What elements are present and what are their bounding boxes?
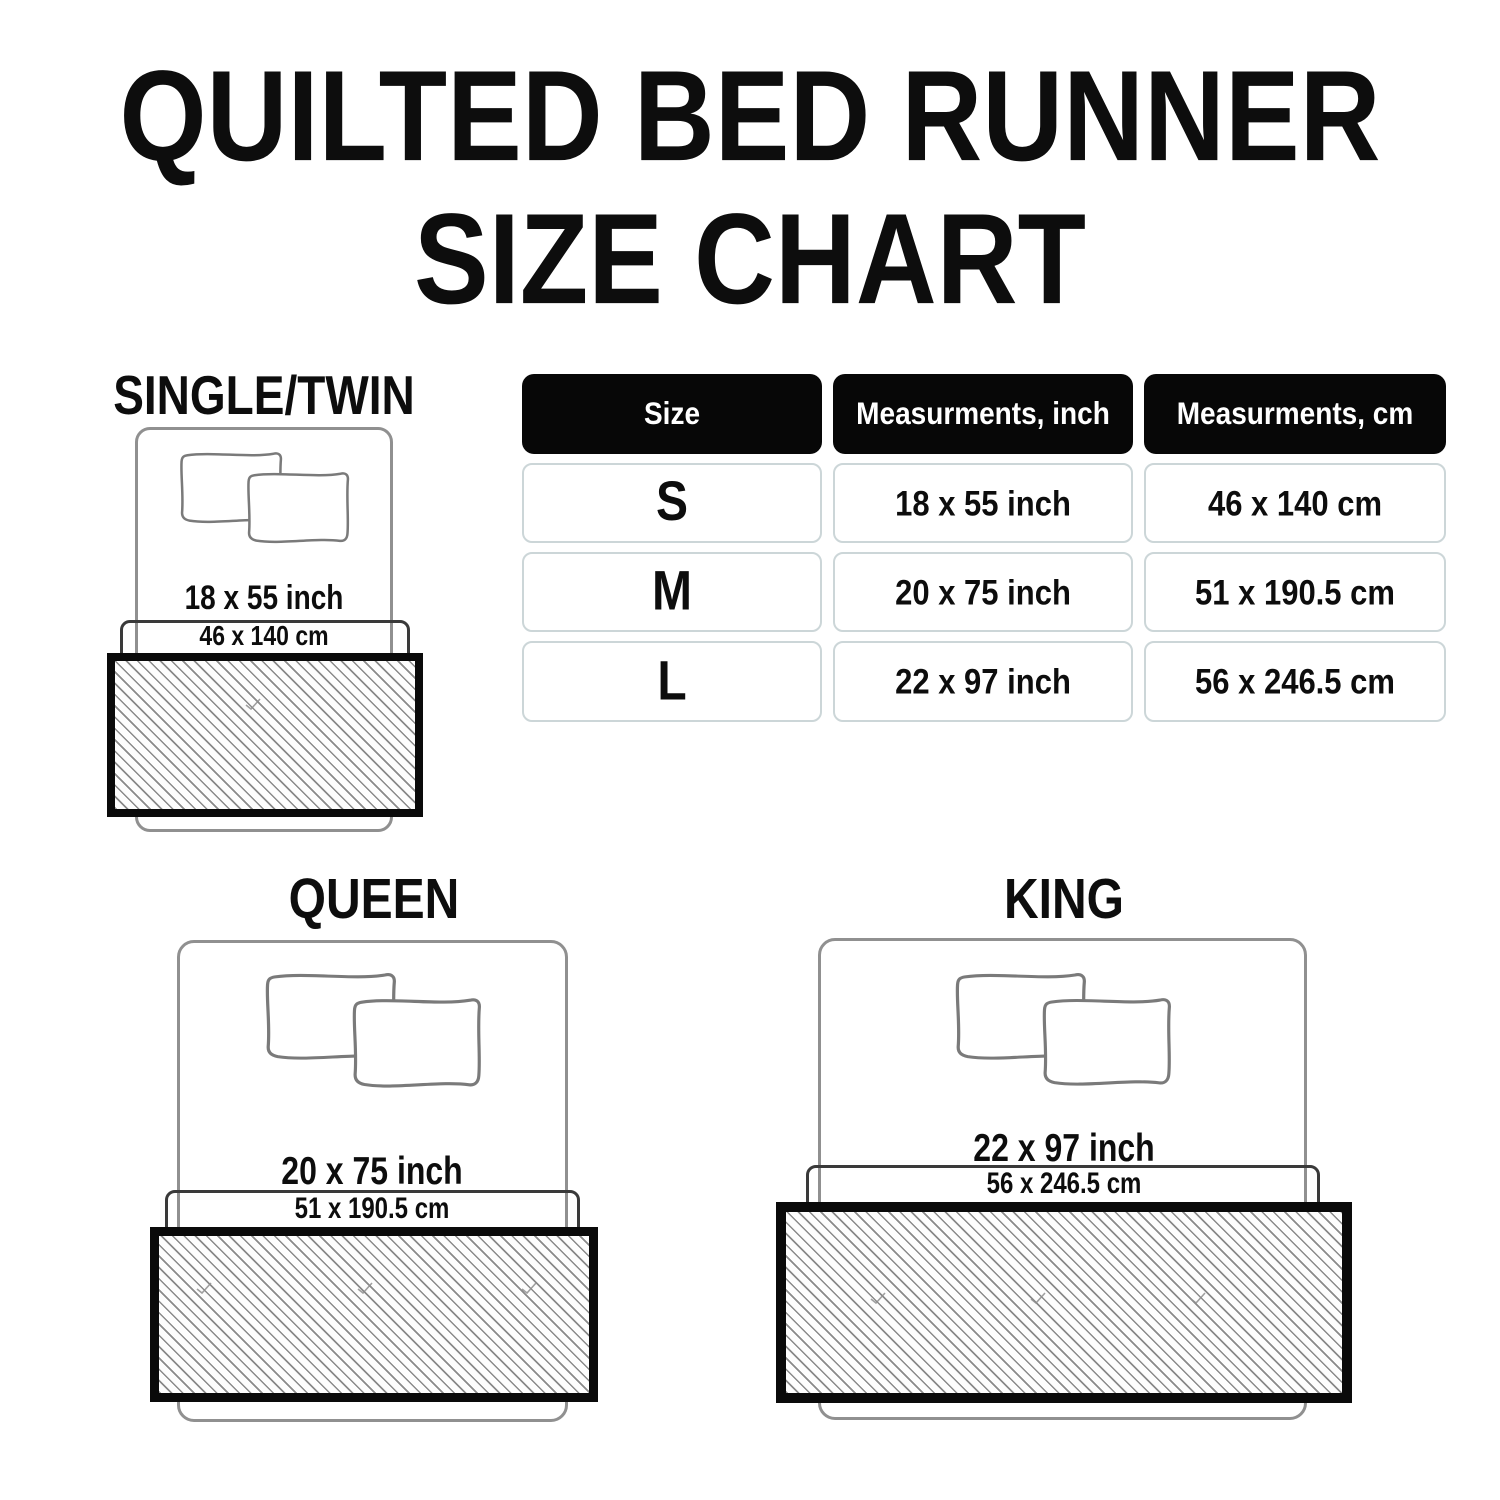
table-row-l-cm: 56 x 246.5 cm [1144, 641, 1446, 722]
king-cm-label: 56 x 246.5 cm [914, 1170, 1214, 1199]
table-row-m-size: M [522, 552, 822, 632]
stitch-tick-icon [196, 1282, 212, 1294]
size-table-header-size: Size [522, 374, 822, 454]
size-table-header-inch: Measurments, inch [833, 374, 1133, 454]
queen-cm-label: 51 x 190.5 cm [222, 1195, 522, 1224]
queen-inch-label: 20 x 75 inch [222, 1151, 522, 1190]
stitch-tick-icon [1190, 1292, 1206, 1304]
stitch-tick-icon [245, 698, 261, 710]
single-twin-label: SINGLE/TWIN [104, 368, 424, 422]
queen-runner-swatch [150, 1227, 598, 1402]
stitch-tick-icon [870, 1292, 886, 1304]
single-twin-inch-label: 18 x 55 inch [114, 581, 414, 615]
single-twin-runner-swatch [107, 653, 423, 817]
pillow-front-icon [245, 468, 350, 545]
king-inch-label: 22 x 97 inch [914, 1128, 1214, 1167]
single-twin-cm-label: 46 x 140 cm [114, 622, 414, 650]
king-runner-swatch [776, 1202, 1352, 1403]
page-title-line-2: SIZE CHART [0, 195, 1500, 324]
table-row-m-cm: 51 x 190.5 cm [1144, 552, 1446, 632]
king-label: KING [904, 872, 1224, 929]
table-row-l-inch: 22 x 97 inch [833, 641, 1133, 722]
size-table-header-cm: Measurments, cm [1144, 374, 1446, 454]
table-row-s-inch: 18 x 55 inch [833, 463, 1133, 543]
table-row-l-size: L [522, 641, 822, 722]
queen-label: QUEEN [214, 872, 534, 929]
stitch-tick-icon [1030, 1292, 1046, 1304]
table-row-s-size: S [522, 463, 822, 543]
stitch-tick-icon [357, 1282, 373, 1294]
table-row-s-cm: 46 x 140 cm [1144, 463, 1446, 543]
page-title-line-1: QUILTED BED RUNNER [0, 52, 1500, 181]
table-row-m-inch: 20 x 75 inch [833, 552, 1133, 632]
pillow-front-icon [350, 993, 482, 1090]
stitch-tick-icon [521, 1282, 537, 1294]
size-chart-infographic: QUILTED BED RUNNER SIZE CHART Size Measu… [0, 0, 1500, 1500]
size-table: Size Measurments, inch Measurments, cm S… [522, 374, 1446, 722]
pillow-front-icon [1040, 993, 1172, 1088]
